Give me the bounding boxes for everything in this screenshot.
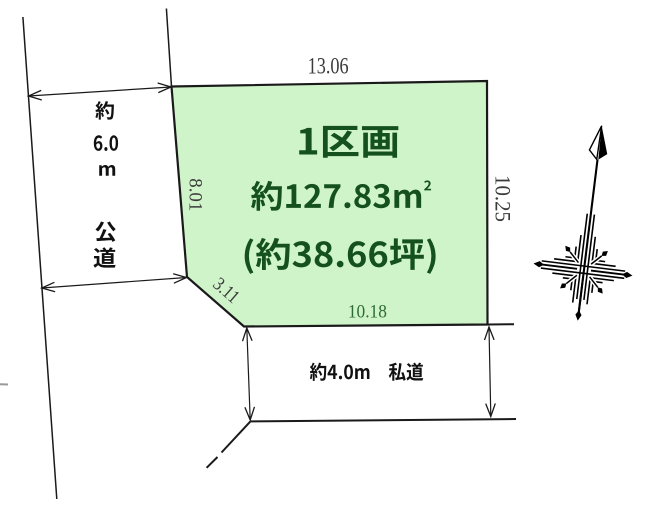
- svg-text:10.25: 10.25: [491, 175, 516, 222]
- svg-text:8.01: 8.01: [185, 178, 206, 211]
- svg-text:13.06: 13.06: [308, 54, 349, 79]
- svg-text:10.18: 10.18: [348, 302, 387, 323]
